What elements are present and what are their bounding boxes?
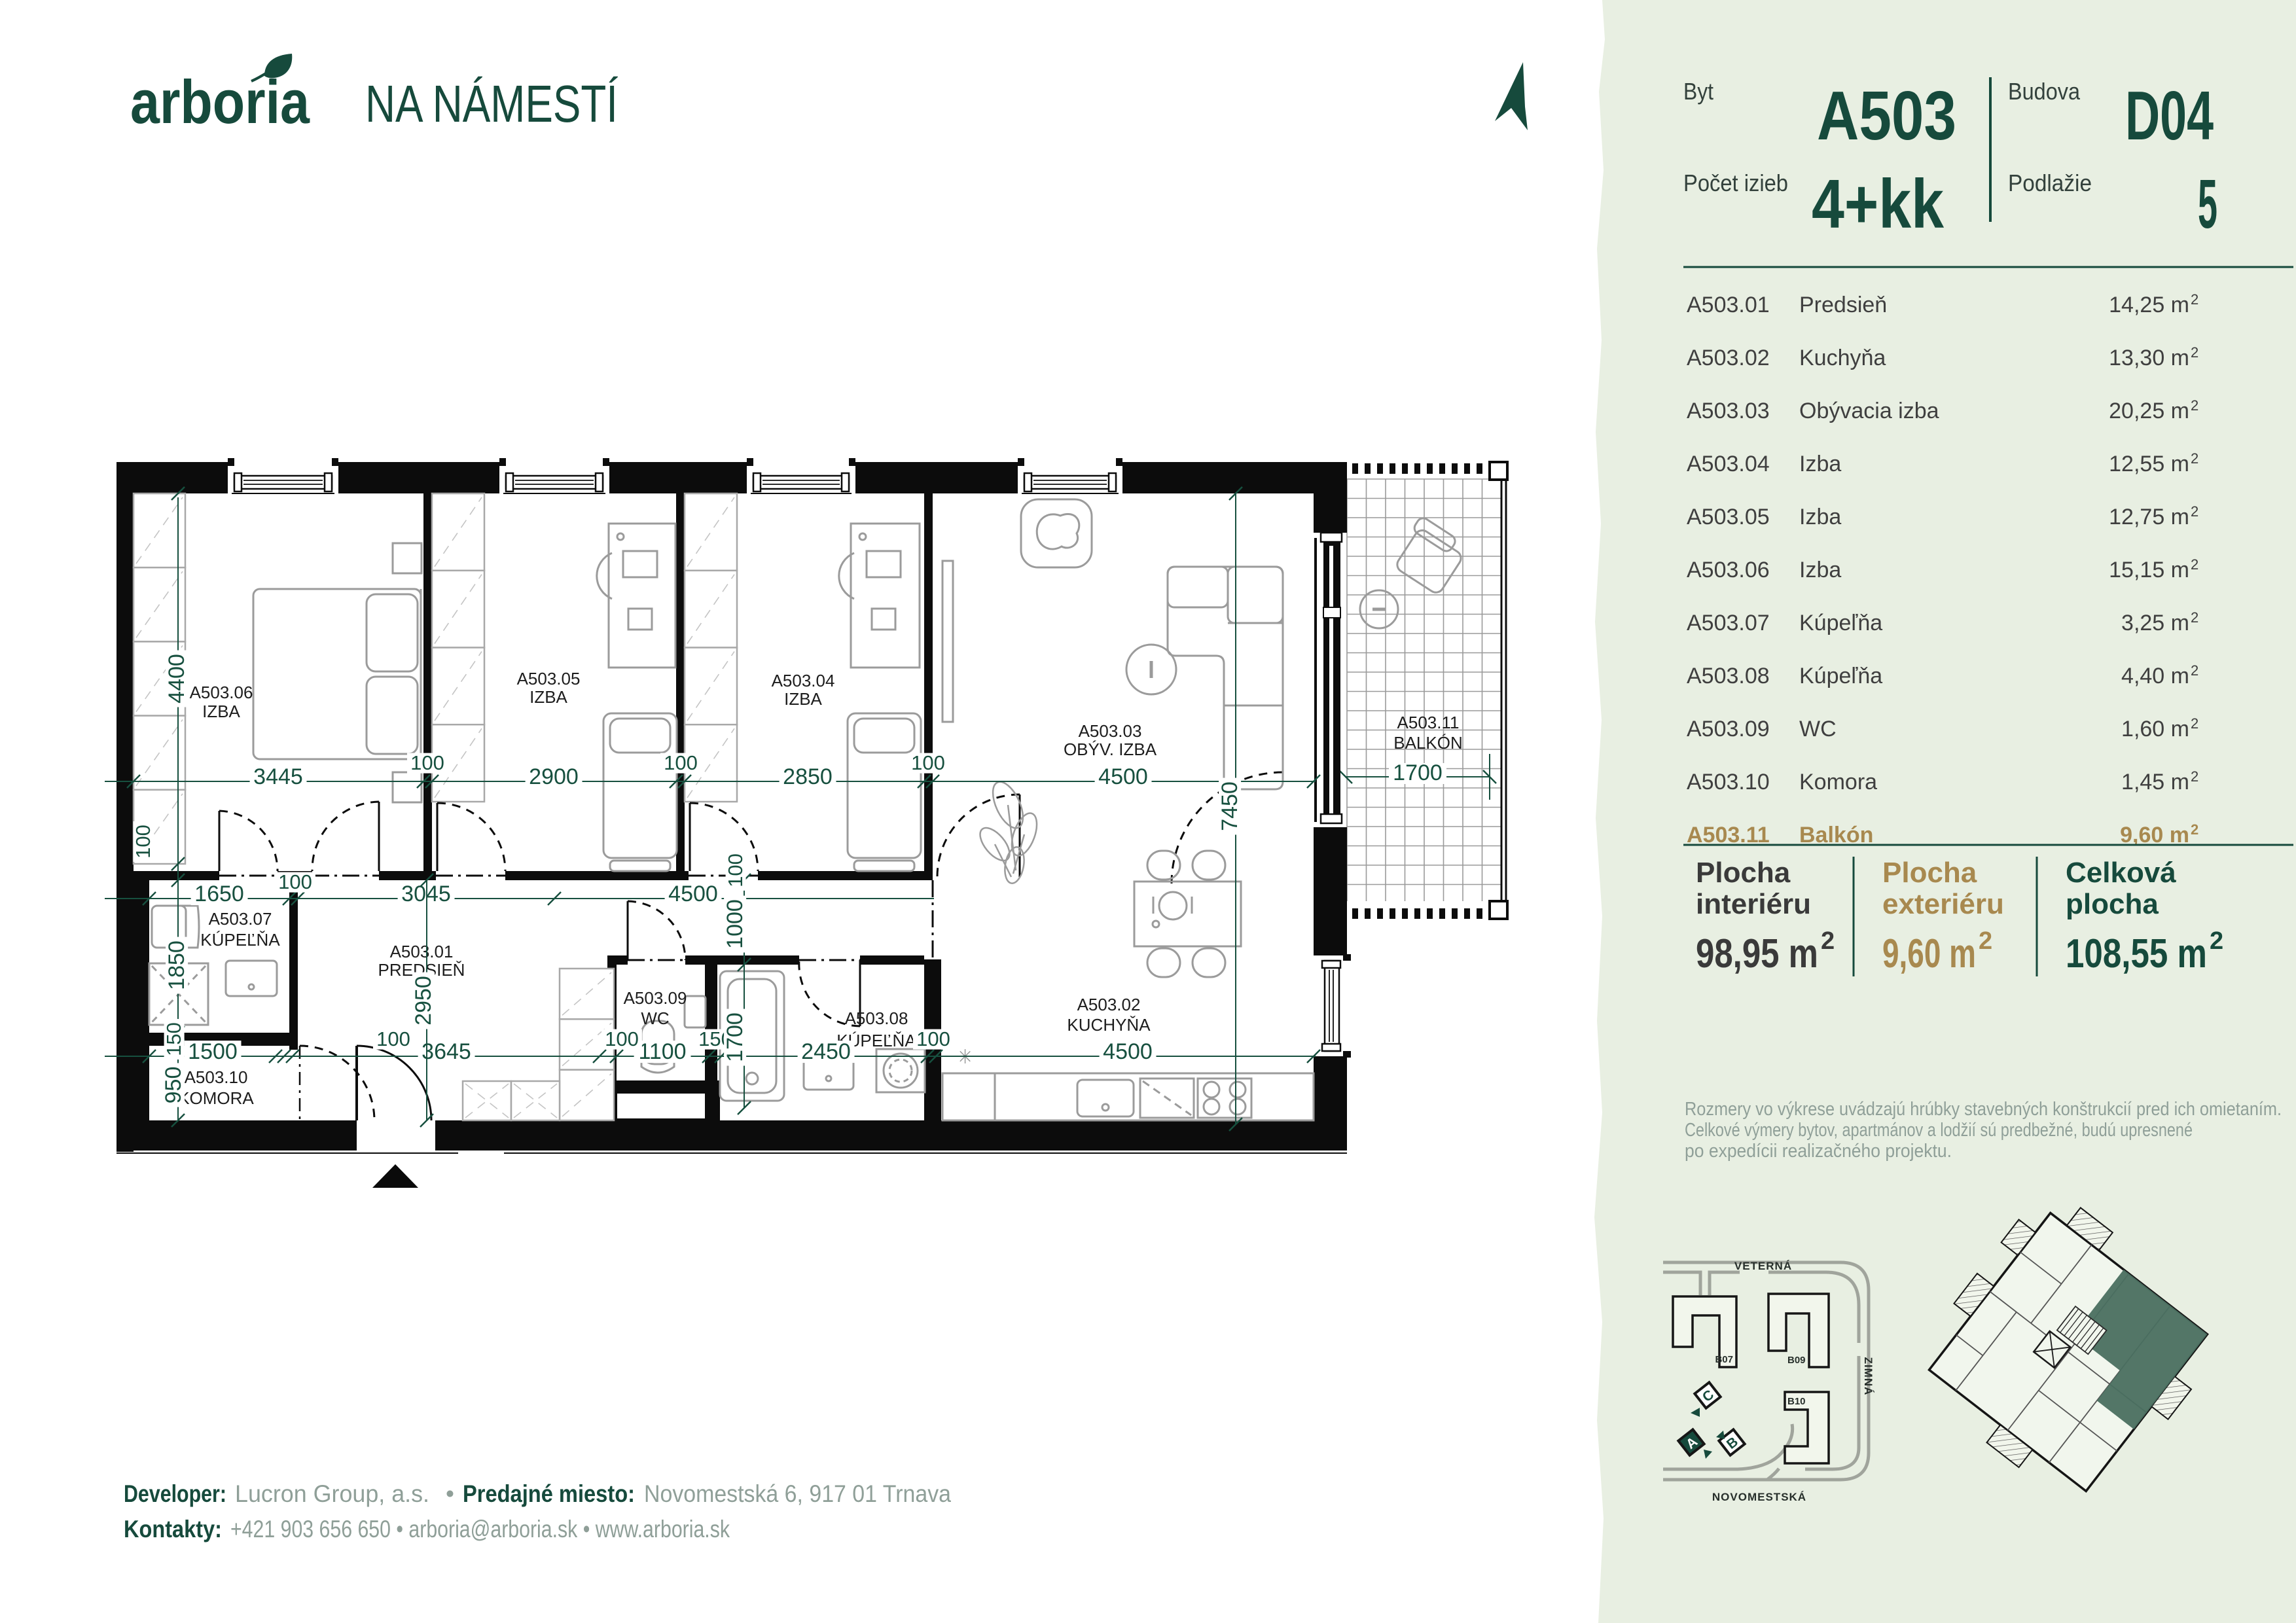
svg-text:150: 150 (162, 1022, 185, 1056)
svg-text:A503.04: A503.04 (1687, 452, 1770, 476)
svg-text:Celkové výmery bytov, apartmán: Celkové výmery bytov, apartmánov a lodži… (1685, 1120, 2193, 1141)
svg-text:2: 2 (2191, 768, 2198, 785)
svg-text:2: 2 (2191, 291, 2198, 308)
svg-text:2: 2 (1821, 927, 1835, 955)
svg-text:A503.02: A503.02 (1077, 995, 1141, 1014)
svg-text:108,55 m: 108,55 m (2066, 931, 2207, 976)
svg-text:100: 100 (664, 751, 698, 774)
svg-text:2: 2 (2191, 609, 2198, 626)
svg-text:arboria: arboria (130, 67, 310, 136)
svg-text:A503.08: A503.08 (845, 1008, 908, 1028)
svg-text:D04: D04 (2125, 77, 2214, 154)
svg-text:A503.10: A503.10 (185, 1067, 248, 1087)
svg-text:A503.07: A503.07 (1687, 611, 1770, 635)
svg-text:2: 2 (2210, 927, 2223, 955)
svg-text:ZIMNÁ: ZIMNÁ (1862, 1357, 1874, 1396)
svg-text:1,60 m: 1,60 m (2121, 717, 2189, 741)
svg-text:OBÝV. IZBA: OBÝV. IZBA (1064, 740, 1157, 759)
svg-text:A503.02: A503.02 (1687, 346, 1770, 370)
svg-text:2: 2 (2191, 556, 2198, 573)
svg-text:13,30 m: 13,30 m (2109, 346, 2189, 370)
svg-text:WC: WC (641, 1008, 669, 1028)
svg-text:4500: 4500 (1103, 1039, 1153, 1064)
svg-text:1850: 1850 (164, 940, 189, 990)
svg-text:4+kk: 4+kk (1812, 166, 1945, 243)
svg-text:Rozmery vo výkrese uvádzajú hr: Rozmery vo výkrese uvádzajú hrúbky stave… (1685, 1099, 2282, 1120)
svg-text:A503.01: A503.01 (390, 942, 454, 961)
svg-text:IZBA: IZBA (784, 689, 822, 709)
svg-text:A503.03: A503.03 (1687, 399, 1770, 423)
svg-text:Balkón: Balkón (1799, 823, 1873, 847)
svg-text:+421 903 656 650 • arboria@arb: +421 903 656 650 • arboria@arboria.sk • … (230, 1516, 730, 1543)
svg-text:Kúpeľňa: Kúpeľňa (1799, 611, 1882, 635)
svg-text:A503.05: A503.05 (1687, 505, 1770, 529)
svg-text:Počet izieb: Počet izieb (1683, 169, 1788, 196)
svg-text:Celková: Celková (2066, 857, 2176, 889)
svg-text:Developer:: Developer: (124, 1480, 226, 1507)
svg-text:2850: 2850 (783, 764, 833, 789)
svg-text:Budova: Budova (2008, 78, 2081, 105)
svg-text:1700: 1700 (1393, 760, 1443, 785)
svg-text:4400: 4400 (164, 654, 189, 704)
svg-text:2: 2 (2191, 503, 2198, 520)
svg-text:2950: 2950 (411, 976, 436, 1026)
svg-text:A503.09: A503.09 (1687, 717, 1770, 741)
svg-text:Lucron Group, a.s.: Lucron Group, a.s. (235, 1480, 429, 1507)
svg-text:4500: 4500 (668, 882, 718, 906)
svg-text:3445: 3445 (253, 764, 303, 789)
svg-text:B07: B07 (1715, 1354, 1733, 1365)
svg-text:WC: WC (1799, 717, 1837, 741)
svg-text:Izba: Izba (1799, 452, 1841, 476)
svg-text:Komora: Komora (1799, 770, 1877, 794)
svg-text:Predajné miesto:: Predajné miesto: (463, 1480, 635, 1507)
svg-text:2450: 2450 (801, 1039, 851, 1064)
svg-text:2900: 2900 (529, 764, 579, 789)
svg-text:A503.11: A503.11 (1687, 823, 1770, 847)
svg-text:•: • (446, 1480, 454, 1507)
svg-text:A503.09: A503.09 (624, 988, 687, 1008)
svg-text:2: 2 (2191, 344, 2198, 361)
svg-text:7450: 7450 (1217, 781, 1242, 831)
svg-text:15,15 m: 15,15 m (2109, 558, 2189, 582)
svg-text:IZBA: IZBA (529, 687, 567, 707)
svg-text:950: 950 (161, 1067, 186, 1104)
svg-text:Obývacia izba: Obývacia izba (1799, 399, 1939, 423)
svg-text:Kúpeľňa: Kúpeľňa (1799, 664, 1882, 688)
svg-text:Predsieň: Predsieň (1799, 293, 1887, 317)
svg-text:Izba: Izba (1799, 505, 1841, 529)
svg-text:2: 2 (2191, 821, 2198, 838)
svg-text:NOVOMESTSKÁ: NOVOMESTSKÁ (1712, 1491, 1806, 1503)
svg-text:A503.05: A503.05 (517, 669, 581, 688)
svg-text:IZBA: IZBA (202, 702, 240, 721)
svg-text:98,95 m: 98,95 m (1696, 931, 1818, 976)
svg-text:A503.10: A503.10 (1687, 770, 1770, 794)
svg-text:100: 100 (278, 870, 312, 893)
svg-text:4,40 m: 4,40 m (2121, 664, 2189, 688)
svg-text:100: 100 (605, 1027, 639, 1050)
svg-text:9,60 m: 9,60 m (1882, 931, 1976, 976)
svg-text:VETERNÁ: VETERNÁ (1734, 1260, 1792, 1272)
svg-text:Plocha: Plocha (1696, 857, 1791, 889)
svg-text:Podlažie: Podlažie (2008, 169, 2092, 196)
svg-text:3645: 3645 (422, 1039, 471, 1064)
svg-text:A503.03: A503.03 (1079, 721, 1142, 741)
svg-text:Izba: Izba (1799, 558, 1841, 582)
svg-text:A503: A503 (1817, 77, 1956, 154)
svg-text:1650: 1650 (194, 882, 244, 906)
svg-text:4500: 4500 (1098, 764, 1148, 789)
svg-text:100: 100 (376, 1027, 410, 1050)
svg-text:100: 100 (132, 825, 154, 859)
svg-text:A503.04: A503.04 (772, 671, 835, 690)
svg-text:Novomestská 6, 917 01 Trnava: Novomestská 6, 917 01 Trnava (644, 1480, 951, 1507)
svg-text:100: 100 (410, 751, 444, 774)
svg-text:B09: B09 (1787, 1355, 1806, 1366)
svg-text:KÚPEĽŇA: KÚPEĽŇA (200, 930, 280, 950)
svg-text:plocha: plocha (2066, 888, 2159, 920)
svg-text:100: 100 (911, 751, 945, 774)
svg-text:Byt: Byt (1683, 78, 1713, 105)
svg-text:A503.08: A503.08 (1687, 664, 1770, 688)
svg-text:2: 2 (2191, 397, 2198, 414)
svg-text:2: 2 (1979, 927, 1992, 955)
svg-text:1,45 m: 1,45 m (2121, 770, 2189, 794)
svg-text:5: 5 (2198, 166, 2217, 243)
svg-text:po expedícii realizačného proj: po expedícii realizačného projektu. (1685, 1141, 1952, 1162)
svg-text:100: 100 (916, 1027, 950, 1050)
svg-text:2: 2 (2191, 662, 2198, 679)
svg-text:BALKÓN: BALKÓN (1393, 733, 1463, 753)
svg-text:1500: 1500 (188, 1039, 238, 1064)
svg-text:A503.06: A503.06 (190, 683, 253, 702)
svg-text:A503.11: A503.11 (1397, 713, 1460, 732)
svg-text:1000: 1000 (723, 899, 747, 949)
svg-text:Kontakty:: Kontakty: (124, 1516, 222, 1543)
svg-text:A503.01: A503.01 (1687, 293, 1770, 317)
svg-text:2: 2 (2191, 450, 2198, 467)
svg-text:12,75 m: 12,75 m (2109, 505, 2189, 529)
svg-text:B10: B10 (1787, 1396, 1806, 1407)
svg-text:1100: 1100 (638, 1039, 686, 1064)
svg-text:12,55 m: 12,55 m (2109, 452, 2189, 476)
svg-text:Plocha: Plocha (1882, 857, 1977, 889)
svg-text:A503.06: A503.06 (1687, 558, 1770, 582)
svg-text:interiéru: interiéru (1696, 888, 1811, 920)
svg-text:20,25 m: 20,25 m (2109, 399, 2189, 423)
svg-text:14,25 m: 14,25 m (2109, 293, 2189, 317)
svg-text:✳: ✳ (957, 1046, 973, 1068)
svg-text:100: 100 (724, 853, 747, 887)
svg-text:3,25 m: 3,25 m (2121, 611, 2189, 635)
svg-text:Kuchyňa: Kuchyňa (1799, 346, 1886, 370)
svg-text:A503.07: A503.07 (209, 909, 272, 929)
svg-text:KUCHYŇA: KUCHYŇA (1067, 1015, 1151, 1035)
svg-text:1700: 1700 (723, 1012, 747, 1062)
svg-text:exteriéru: exteriéru (1882, 888, 2004, 920)
svg-text:NA NÁMESTÍ: NA NÁMESTÍ (365, 75, 619, 133)
svg-text:9,60 m: 9,60 m (2120, 823, 2189, 847)
svg-text:2: 2 (2191, 715, 2198, 732)
svg-text:KOMORA: KOMORA (178, 1088, 254, 1108)
